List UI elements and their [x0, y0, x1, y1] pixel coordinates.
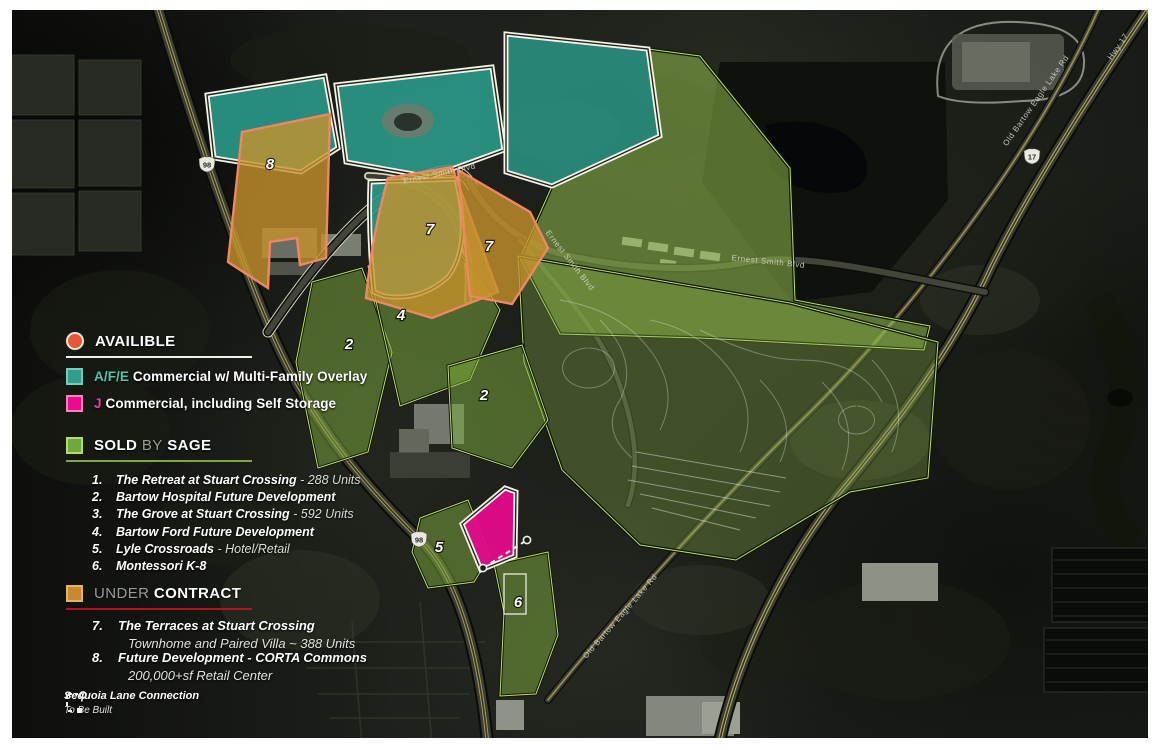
svg-text:17: 17 [1028, 153, 1036, 162]
j-label: Commercial, including Self Storage [105, 396, 336, 411]
svg-text:98: 98 [203, 161, 211, 170]
afe-label: Commercial w/ Multi-Family Overlay [133, 369, 367, 384]
sequoia-dashed-icon [64, 690, 90, 716]
list-item: 1.The Retreat at Stuart Crossing - 288 U… [92, 472, 361, 489]
legend-available-row: AVAILIBLE [66, 332, 176, 350]
magenta-swatch-icon [66, 395, 83, 412]
sold-underline [66, 460, 252, 462]
legend-under-contract-row: UNDER CONTRACT [66, 585, 241, 602]
parcel-label-4: 4 [396, 307, 406, 324]
parcel-label-7b: 7 [485, 238, 494, 255]
parcel-label-2b: 2 [479, 387, 489, 404]
site-map-page: 98 98 17 Ernest Smith Blvd Ernest Smith … [0, 0, 1160, 750]
legend-sold-row: SOLD BY SAGE [66, 437, 211, 454]
contract-item-8: 8.Future Development - CORTA Commons 200… [92, 650, 367, 683]
us-17-shield: 17 [1024, 149, 1040, 164]
parcel-label-6: 6 [514, 594, 523, 611]
teal-swatch-icon [66, 368, 83, 385]
legend-afe-row: A/F/E Commercial w/ Multi-Family Overlay [66, 368, 367, 385]
contract-item-7: 7.The Terraces at Stuart Crossing Townho… [92, 618, 355, 651]
parcel-3-grove-residential [518, 256, 938, 560]
available-underline [66, 356, 252, 358]
list-item: 3.The Grove at Stuart Crossing - 592 Uni… [92, 506, 361, 523]
legend-j-row: J Commercial, including Self Storage [66, 395, 336, 412]
under-word: UNDER [94, 585, 149, 602]
available-label: AVAILIBLE [95, 333, 176, 350]
sold-items-list: 1.The Retreat at Stuart Crossing - 288 U… [92, 472, 361, 575]
available-dot-icon [66, 332, 84, 350]
list-item: 4.Bartow Ford Future Development [92, 524, 361, 541]
parcel-label-5: 5 [435, 539, 444, 556]
by-word: BY [142, 437, 163, 454]
afe-code: A/F/E [94, 369, 129, 384]
sold-word: SOLD [94, 437, 137, 454]
under-contract-underline [66, 608, 252, 610]
sequoia-legend-row: Sequoia Lane Connection To Be Built [64, 690, 199, 716]
green-swatch-icon [66, 437, 83, 454]
orange-swatch-icon [66, 585, 83, 602]
parcel-label-7a: 7 [426, 221, 435, 238]
svg-text:98: 98 [415, 536, 423, 545]
parcel-8-corta-commons [228, 114, 330, 288]
list-item: 2.Bartow Hospital Future Development [92, 489, 361, 506]
contract-word: CONTRACT [154, 585, 241, 602]
j-code: J [94, 396, 102, 411]
list-item: 5.Lyle Crossroads - Hotel/Retail [92, 541, 361, 558]
parcel-label-2a: 2 [344, 336, 354, 353]
parcel-6-montessori [494, 552, 558, 696]
teal-parcel-north-pond [336, 67, 504, 177]
sage-word: SAGE [167, 437, 211, 454]
list-item: 6.Montessori K-8 [92, 558, 361, 575]
parcel-label-8: 8 [266, 156, 275, 173]
